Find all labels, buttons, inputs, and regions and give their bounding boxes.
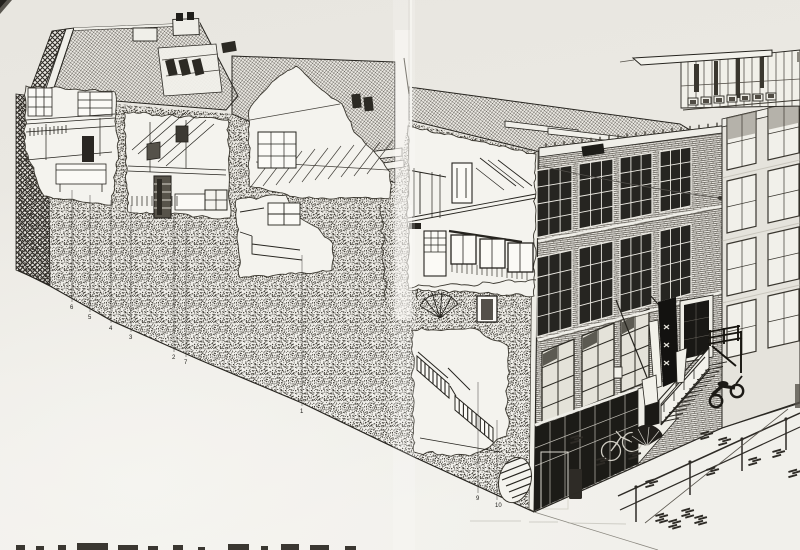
svg-text:10: 10 — [495, 503, 502, 509]
